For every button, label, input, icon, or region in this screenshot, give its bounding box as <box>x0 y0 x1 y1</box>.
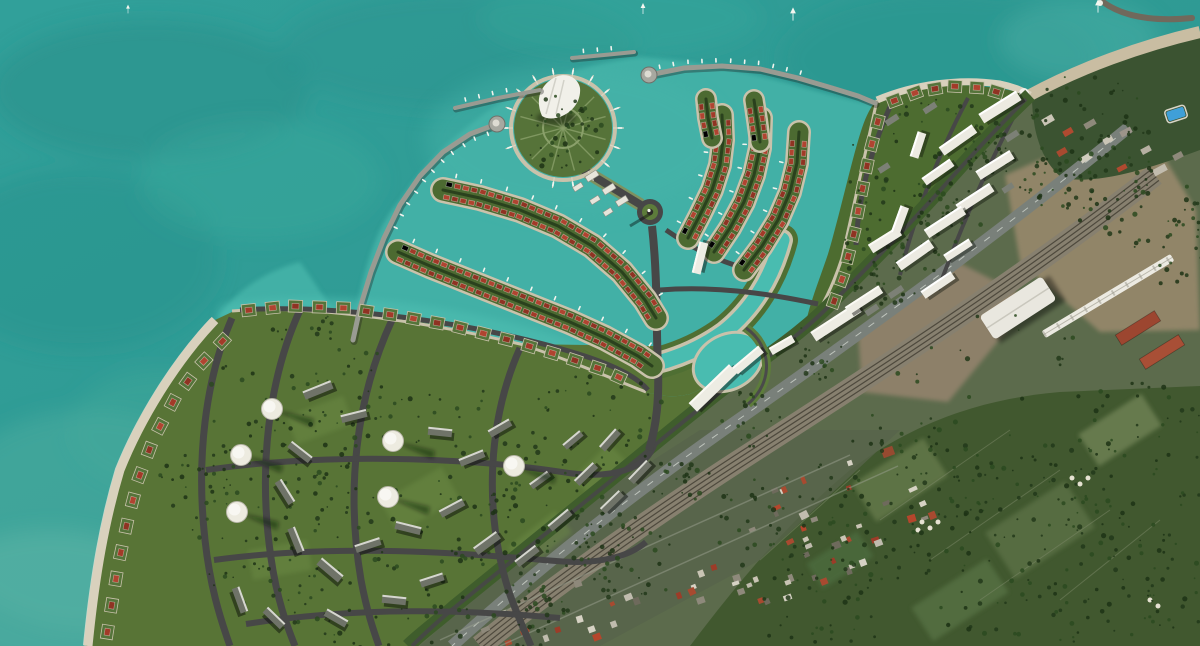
tree <box>743 403 748 408</box>
villa <box>864 162 871 170</box>
villa <box>758 106 763 113</box>
tree <box>1147 386 1150 389</box>
tree <box>831 520 835 524</box>
tree <box>1041 535 1043 537</box>
tree <box>324 414 327 417</box>
tree <box>1177 220 1181 224</box>
tree <box>565 564 568 567</box>
tree <box>271 327 275 331</box>
tree <box>594 541 596 543</box>
tree <box>964 565 966 567</box>
tree <box>583 106 587 110</box>
tree <box>354 444 358 448</box>
tree <box>613 589 617 593</box>
tree <box>548 602 553 607</box>
tree <box>578 136 582 140</box>
tree <box>1179 420 1181 422</box>
tree <box>1043 477 1045 479</box>
villa <box>451 196 458 202</box>
tree <box>1034 459 1037 462</box>
tree <box>587 546 590 549</box>
tree <box>297 477 301 481</box>
tree <box>1103 225 1108 230</box>
tree <box>1012 470 1014 472</box>
tree <box>913 292 915 294</box>
tree <box>299 584 302 587</box>
tree <box>482 390 485 393</box>
tree <box>255 537 258 540</box>
tree <box>197 535 202 540</box>
tree <box>629 568 633 572</box>
tree <box>1138 544 1142 548</box>
tree <box>653 548 658 553</box>
tree <box>637 434 642 439</box>
tree <box>547 545 549 547</box>
tree <box>509 509 512 512</box>
tree <box>535 539 540 544</box>
tree <box>954 240 958 244</box>
tree <box>1059 609 1063 613</box>
tree <box>529 582 532 585</box>
tree <box>343 447 347 451</box>
tree <box>975 156 978 159</box>
tree <box>867 237 872 242</box>
tree <box>329 331 332 334</box>
tree <box>601 588 606 593</box>
tree <box>1013 632 1017 636</box>
tree <box>1169 262 1172 265</box>
tree <box>873 263 877 267</box>
tree <box>1194 577 1196 579</box>
tree <box>1065 568 1068 571</box>
tree <box>688 467 692 471</box>
tree <box>1119 517 1121 519</box>
tree <box>945 205 950 210</box>
tree <box>1137 186 1141 190</box>
tree <box>1047 586 1051 590</box>
tree <box>799 359 803 363</box>
tree <box>889 502 892 505</box>
tree <box>372 497 374 499</box>
tree <box>930 346 933 349</box>
breakwater-knob-top <box>493 120 500 127</box>
tree <box>659 535 662 538</box>
tree <box>348 609 351 612</box>
tree <box>644 455 647 458</box>
tree <box>1094 408 1099 413</box>
tree <box>427 593 430 596</box>
villa <box>725 147 730 153</box>
tree <box>1109 535 1114 540</box>
tree <box>1105 394 1109 398</box>
small-white-structure <box>936 520 941 525</box>
tree <box>448 475 452 479</box>
tree <box>531 114 533 116</box>
tree <box>1155 459 1158 462</box>
tree <box>988 142 990 144</box>
tree <box>229 484 231 486</box>
tree <box>1076 529 1078 531</box>
tree <box>950 499 954 503</box>
moored-boat <box>701 59 703 64</box>
tree <box>798 495 801 498</box>
tree <box>985 159 990 164</box>
tree <box>830 559 832 561</box>
tree <box>321 319 325 323</box>
tree <box>1130 382 1133 385</box>
tree <box>921 121 923 123</box>
tree <box>843 600 848 605</box>
tree <box>746 519 750 523</box>
tree <box>1185 185 1189 189</box>
tree <box>1077 91 1081 95</box>
tree <box>527 625 532 630</box>
tree <box>329 337 332 340</box>
tree <box>1149 594 1151 596</box>
tree <box>1151 600 1153 602</box>
tree <box>267 567 271 571</box>
tree <box>1077 524 1082 529</box>
tree <box>925 220 927 222</box>
tree <box>520 518 525 523</box>
tree <box>1093 418 1097 422</box>
tree <box>556 113 560 117</box>
tree <box>935 99 937 101</box>
tree <box>1089 188 1094 193</box>
tree <box>1089 198 1092 201</box>
tree <box>1153 594 1155 596</box>
tree <box>900 242 904 246</box>
tree <box>803 554 805 556</box>
tree <box>375 352 379 356</box>
tree <box>290 374 295 379</box>
tree <box>1133 126 1137 130</box>
tree <box>1180 408 1185 413</box>
tree <box>932 269 935 272</box>
tree <box>1151 584 1154 587</box>
villa <box>108 601 115 609</box>
tree <box>274 430 276 432</box>
tree <box>316 474 318 476</box>
tree <box>875 176 879 180</box>
tree <box>606 595 611 600</box>
tree <box>748 445 751 448</box>
tree <box>958 480 960 482</box>
tree <box>818 373 820 375</box>
moored-boat <box>742 143 747 145</box>
tree <box>773 543 775 545</box>
tree <box>288 599 290 601</box>
tree <box>804 371 809 376</box>
tree <box>599 123 604 128</box>
tree <box>708 472 711 475</box>
tree <box>749 393 753 397</box>
tree <box>258 506 260 508</box>
tree <box>925 572 928 575</box>
tree <box>195 516 198 519</box>
tree <box>976 501 979 504</box>
villa <box>700 113 705 119</box>
tree <box>588 374 593 379</box>
tree <box>579 161 582 164</box>
tree <box>761 487 764 490</box>
tree <box>565 390 567 392</box>
tree <box>808 349 810 351</box>
villa <box>951 83 958 89</box>
villa <box>113 575 120 583</box>
tree <box>354 487 357 490</box>
tree <box>853 629 855 631</box>
tree <box>556 389 560 393</box>
tree <box>1110 475 1113 478</box>
tree <box>963 447 968 452</box>
tree <box>524 597 528 601</box>
tree <box>505 488 508 491</box>
tree <box>1020 130 1025 135</box>
tree <box>407 618 409 620</box>
tree <box>1037 496 1039 498</box>
tree <box>225 492 229 496</box>
tree <box>960 546 964 550</box>
tree <box>1095 588 1099 592</box>
tree <box>510 482 513 485</box>
tree <box>1071 498 1074 501</box>
tree <box>249 478 252 481</box>
tree <box>1128 526 1130 528</box>
tree <box>858 189 861 192</box>
tree <box>610 548 615 553</box>
tree <box>340 410 343 413</box>
tree <box>1134 195 1138 199</box>
tree <box>544 598 548 602</box>
tree <box>1037 195 1042 200</box>
tree <box>171 504 175 508</box>
tree <box>1088 473 1090 475</box>
tree <box>868 572 873 577</box>
tree <box>1148 615 1151 618</box>
tree <box>920 473 922 475</box>
tree <box>994 142 997 145</box>
tree <box>519 571 523 575</box>
tree <box>892 267 895 270</box>
tree <box>226 503 228 505</box>
tree <box>920 422 922 424</box>
tree <box>1196 202 1200 206</box>
tree <box>1103 197 1107 201</box>
tree <box>847 488 850 491</box>
tree <box>1012 535 1015 538</box>
tree <box>1129 163 1133 167</box>
tree <box>381 551 383 553</box>
tree <box>575 489 578 492</box>
tree <box>895 371 900 376</box>
tree <box>745 546 749 550</box>
tree <box>1181 491 1184 494</box>
tree <box>918 183 920 185</box>
landmark-tower-top <box>647 209 650 212</box>
tree <box>536 629 540 633</box>
tree <box>158 473 162 477</box>
tree <box>222 444 226 448</box>
villa <box>710 103 715 109</box>
tree <box>664 588 667 591</box>
tree <box>366 405 370 409</box>
tree <box>209 485 213 489</box>
tree <box>1037 559 1041 563</box>
tree <box>994 534 997 537</box>
tree <box>956 475 959 478</box>
tree <box>969 531 971 533</box>
moored-boat <box>715 58 717 63</box>
tree <box>875 561 878 564</box>
tree <box>726 494 728 496</box>
tree <box>854 285 859 290</box>
tree <box>434 610 438 614</box>
tree <box>1133 189 1137 193</box>
tree <box>753 478 756 481</box>
tree <box>585 523 588 526</box>
tree <box>271 594 275 598</box>
tree <box>1167 618 1170 621</box>
tree <box>347 365 350 368</box>
tree <box>323 476 326 479</box>
tree <box>1122 579 1124 581</box>
tree <box>590 117 594 121</box>
tree <box>1146 239 1150 243</box>
tree <box>919 530 924 535</box>
tree <box>548 486 551 489</box>
tree <box>461 595 465 599</box>
tree <box>937 487 941 491</box>
villa <box>386 311 394 317</box>
tree <box>1098 541 1103 546</box>
tree <box>829 476 833 480</box>
tree <box>896 474 898 476</box>
tree <box>928 436 931 439</box>
tree <box>1063 584 1068 589</box>
tree <box>1018 329 1020 331</box>
tree <box>336 422 338 424</box>
tree <box>324 472 328 476</box>
tree <box>847 266 852 271</box>
tree <box>528 605 532 609</box>
tree <box>1079 104 1082 107</box>
tree <box>535 607 540 612</box>
tree <box>1015 483 1019 487</box>
tree <box>880 578 883 581</box>
tree <box>870 272 874 276</box>
tree <box>418 440 420 442</box>
tree <box>1182 596 1187 601</box>
tree <box>1167 395 1171 399</box>
tree <box>513 487 517 491</box>
tree <box>998 507 1003 512</box>
tree <box>1098 138 1103 143</box>
tree <box>615 461 618 464</box>
tree <box>1196 235 1199 238</box>
tree <box>368 390 370 392</box>
tree <box>1127 133 1131 137</box>
tree <box>609 522 613 526</box>
villa <box>796 177 802 184</box>
tree <box>925 472 927 474</box>
tree <box>1134 180 1137 183</box>
tree <box>457 538 461 542</box>
tree <box>416 441 418 443</box>
tree <box>1191 216 1195 220</box>
tree <box>866 228 869 231</box>
tree <box>1044 548 1046 550</box>
tree <box>615 563 620 568</box>
tree <box>996 135 999 138</box>
tree <box>828 568 831 571</box>
tree <box>920 102 922 104</box>
tree <box>261 450 264 453</box>
tree <box>429 394 431 396</box>
tree <box>818 531 822 535</box>
villa <box>340 305 347 311</box>
tree <box>1106 441 1111 446</box>
tree <box>550 141 554 145</box>
tree <box>941 191 946 196</box>
tree <box>213 465 215 467</box>
tree <box>1031 517 1036 522</box>
tree <box>337 536 339 538</box>
villa <box>759 165 765 172</box>
tree <box>786 616 788 618</box>
tree <box>867 587 869 589</box>
tree <box>1016 632 1021 637</box>
tree <box>1109 505 1112 508</box>
tree <box>752 445 755 448</box>
tree <box>1020 592 1025 597</box>
tree <box>742 421 745 424</box>
tree <box>720 419 724 423</box>
tree <box>884 555 888 559</box>
tree <box>561 167 563 169</box>
tree <box>1078 174 1082 178</box>
tree <box>898 113 901 116</box>
tower-top <box>380 489 392 501</box>
tree <box>661 493 663 495</box>
tree <box>927 553 931 557</box>
tree <box>1108 448 1110 450</box>
villa <box>786 166 792 173</box>
tree <box>1033 492 1037 496</box>
tree <box>800 327 802 329</box>
tree <box>243 565 246 568</box>
tree <box>818 378 821 381</box>
villa <box>784 175 790 182</box>
tree <box>491 511 495 515</box>
tree <box>964 148 967 151</box>
tree <box>918 193 922 197</box>
villa <box>761 156 767 163</box>
tree <box>503 550 508 555</box>
tree <box>822 599 826 603</box>
tree <box>600 545 605 550</box>
tree <box>688 495 690 497</box>
tree <box>1151 523 1155 527</box>
tree <box>1113 147 1116 150</box>
tree <box>659 400 664 405</box>
tree <box>688 476 690 478</box>
tree <box>824 376 827 379</box>
tree <box>970 509 972 511</box>
tree <box>965 497 967 499</box>
tree <box>320 508 324 512</box>
tree <box>1168 533 1171 536</box>
